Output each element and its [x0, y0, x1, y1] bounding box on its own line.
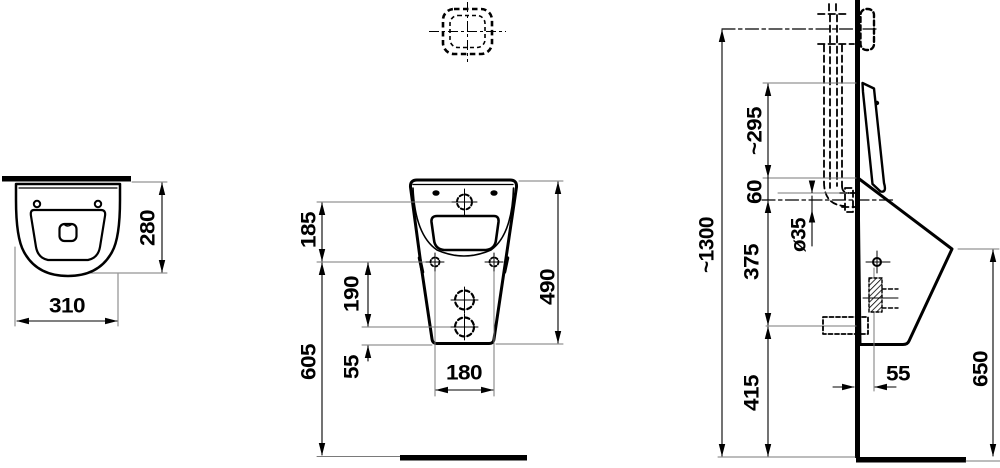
- bowl-outline-top: [16, 184, 120, 276]
- dim-label-605: 605: [298, 343, 321, 380]
- wall-section-side: [855, 0, 860, 458]
- urinal-dimension-drawing: 280 310: [0, 0, 1000, 468]
- dim-label-depth-280: 280: [137, 210, 160, 246]
- dim-label-190: 190: [341, 276, 364, 312]
- dim-label-width-310: 310: [49, 295, 85, 318]
- rim-hole-left: [432, 190, 439, 196]
- dim-label-415: 415: [741, 374, 764, 411]
- dim-label-295: ~295: [744, 106, 767, 155]
- dim-label-1300: ~1300: [696, 217, 719, 273]
- dim-label-490: 490: [537, 269, 560, 305]
- rim-hole-right: [490, 190, 497, 196]
- dim-label-185: 185: [298, 211, 321, 248]
- wall-section-top: [2, 176, 131, 182]
- dim-label-55-front: 55: [341, 354, 364, 379]
- dim-label-pipe-diameter: ø35: [788, 217, 811, 252]
- dim-label-55-side: 55: [886, 363, 911, 386]
- dim-label-180: 180: [446, 362, 482, 385]
- dim-label-650: 650: [970, 351, 993, 387]
- dim-label-375: 375: [741, 243, 764, 280]
- floor-line-front: [400, 455, 527, 461]
- bowl-opening-front: [431, 216, 498, 250]
- mount-hole-left: [34, 201, 40, 207]
- mount-hole-right: [95, 201, 101, 207]
- rim-detail-dot: [875, 101, 879, 105]
- floor-line-side: [856, 457, 966, 463]
- dim-label-60: 60: [744, 180, 767, 204]
- technical-drawing-page: 280 310: [0, 0, 1000, 468]
